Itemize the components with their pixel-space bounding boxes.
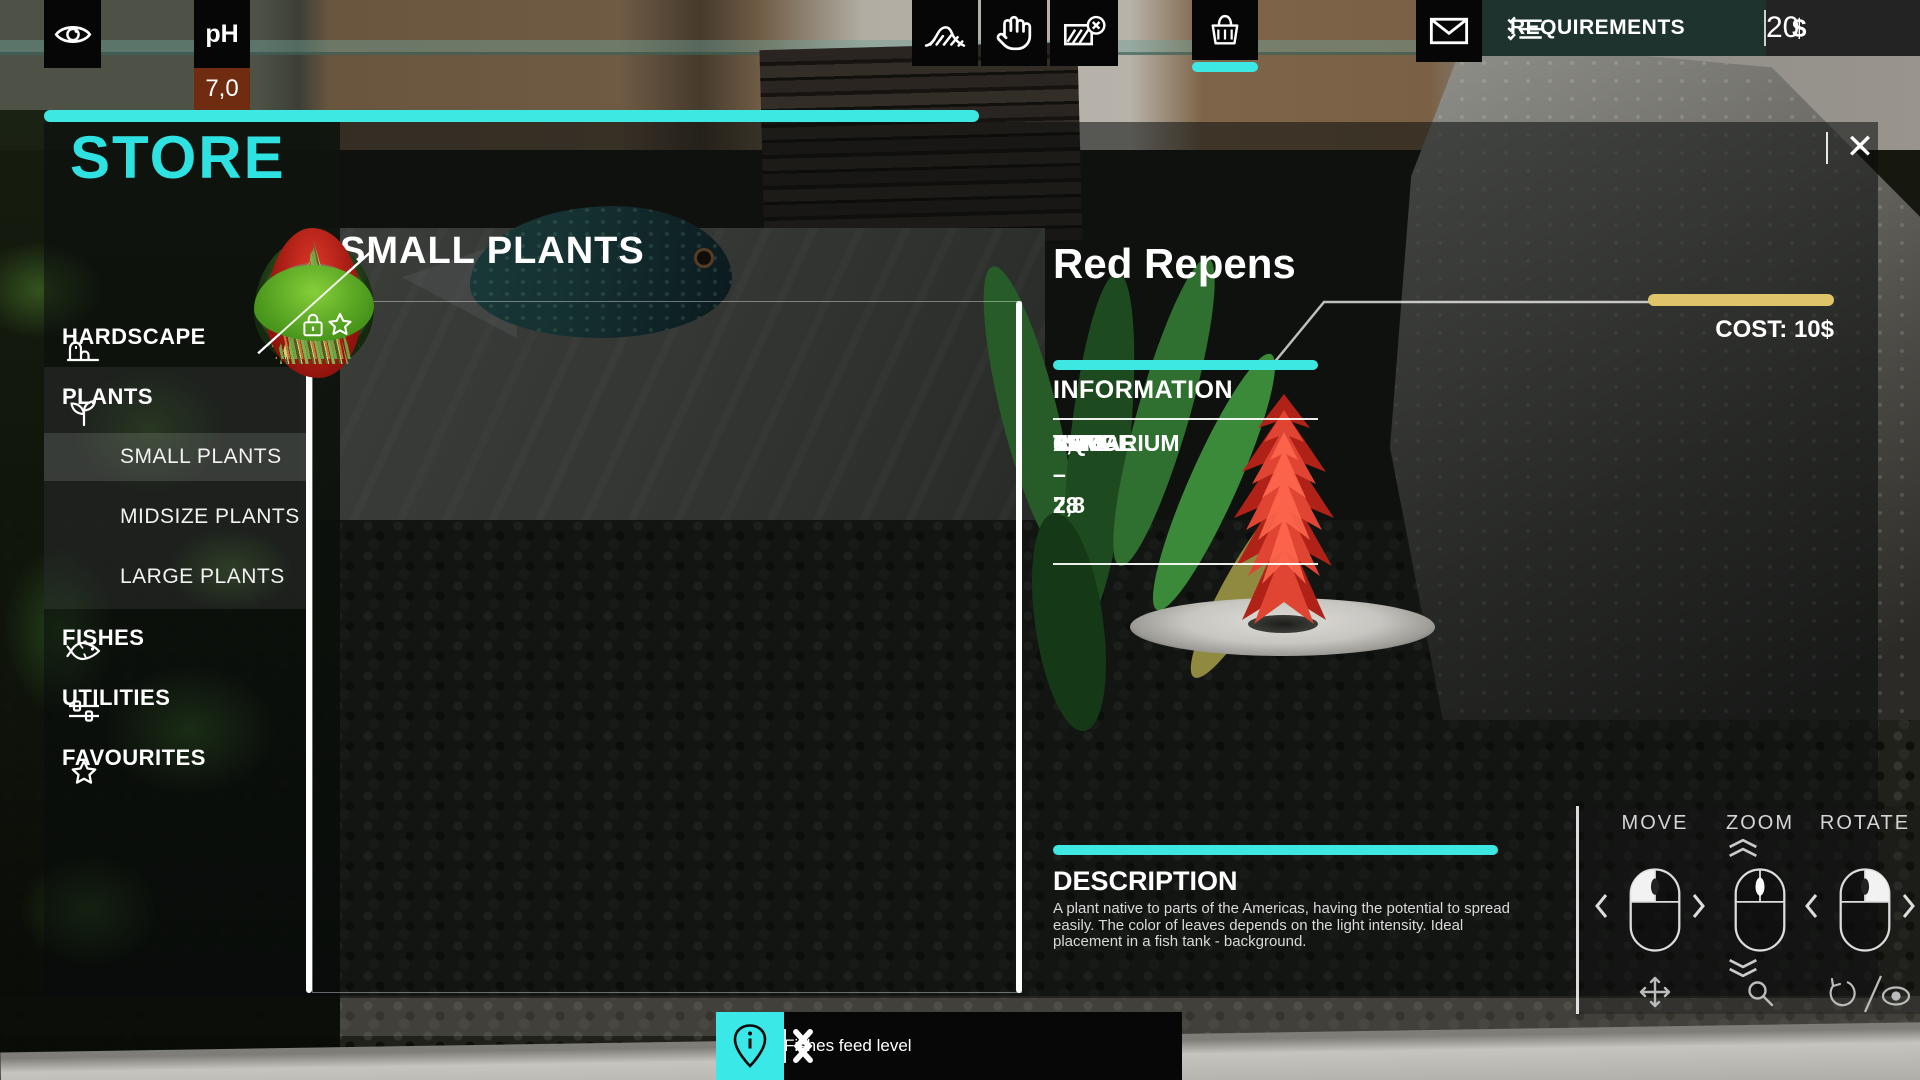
tooltip-bar: Fishes feed level bbox=[784, 1012, 1182, 1080]
store-title: STORE bbox=[70, 122, 286, 194]
section-title: SMALL PLANTS bbox=[340, 230, 645, 273]
magnifier-icon bbox=[1745, 978, 1775, 1008]
visibility-button[interactable] bbox=[44, 0, 101, 68]
sidebar-item-utilities[interactable]: UTILITIES bbox=[44, 678, 312, 718]
mouse-move-icon bbox=[1628, 864, 1682, 956]
sidebar-item-plants[interactable]: PLANTS bbox=[44, 377, 312, 417]
sidebar-item-large-plants[interactable]: LARGE PLANTS bbox=[44, 557, 312, 597]
sidebar-label: MIDSIZE PLANTS bbox=[120, 505, 300, 529]
sand-mound-icon bbox=[924, 17, 966, 49]
sidebar-item-fishes[interactable]: FISHES bbox=[44, 618, 312, 658]
camera-controls-panel: MOVE ZOOM ROTATE bbox=[1576, 806, 1920, 1014]
sidebar-label: UTILITIES bbox=[62, 685, 170, 711]
eraser-tool-button[interactable] bbox=[1050, 0, 1118, 66]
empty-cell bbox=[313, 302, 315, 304]
ph-value: 7,0 bbox=[205, 75, 238, 103]
information-accent-bar bbox=[1053, 360, 1318, 370]
eye-icon bbox=[54, 22, 92, 47]
sidebar-label: FISHES bbox=[62, 625, 144, 651]
cost-label: COST: 10$ bbox=[1598, 316, 1834, 344]
sidebar-label: SMALL PLANTS bbox=[120, 445, 282, 469]
sidebar-item-midsize-plants[interactable]: MIDSIZE PLANTS bbox=[44, 497, 312, 537]
game-screen: STORE ✕ HARDSCAPE PLANTS SMALL PLANTS bbox=[0, 0, 1920, 1080]
info-pin-icon bbox=[730, 1022, 770, 1070]
sidebar-label: FAVOURITES bbox=[62, 745, 206, 771]
double-chevron-down-icon bbox=[1725, 958, 1761, 978]
eraser-x-icon bbox=[1062, 14, 1106, 52]
sidebar-item-small-plants[interactable]: SMALL PLANTS bbox=[44, 437, 312, 477]
mouse-zoom-icon bbox=[1733, 864, 1787, 956]
chevron-left-icon bbox=[1803, 892, 1819, 920]
ph-label: pH bbox=[205, 20, 238, 49]
mail-button[interactable] bbox=[1416, 0, 1482, 62]
zoom-label: ZOOM bbox=[1705, 812, 1815, 835]
sand-tool-button[interactable] bbox=[912, 0, 978, 66]
description-accent-bar bbox=[1053, 845, 1498, 855]
chevron-right-icon bbox=[1901, 892, 1917, 920]
requirements-button[interactable]: REQUIREMENTS bbox=[1482, 0, 1766, 56]
move-label: MOVE bbox=[1600, 812, 1710, 835]
rotate-label: ROTATE bbox=[1810, 812, 1920, 835]
preview-red-plant bbox=[1184, 380, 1384, 670]
plant-grid bbox=[312, 301, 1022, 993]
sidebar-label: PLANTS bbox=[62, 384, 153, 410]
move-arrows-icon bbox=[1637, 974, 1673, 1010]
cost-bar bbox=[1648, 294, 1834, 306]
divider bbox=[1053, 418, 1318, 420]
stat-value: LARGE bbox=[1053, 428, 1134, 459]
close-divider bbox=[1826, 132, 1828, 164]
checklist-icon bbox=[1506, 13, 1544, 43]
chevron-right-icon bbox=[1691, 892, 1707, 920]
close-button[interactable]: ✕ bbox=[1834, 122, 1886, 172]
mouse-rotate-icon bbox=[1838, 864, 1892, 956]
envelope-icon bbox=[1429, 16, 1469, 46]
basket-button[interactable] bbox=[1192, 0, 1258, 60]
hand-tool-button[interactable] bbox=[981, 0, 1047, 66]
rotate-eye-icon bbox=[1825, 974, 1913, 1014]
plant-name: Red Repens bbox=[1053, 240, 1296, 288]
chevron-left-icon bbox=[1593, 892, 1609, 920]
hand-icon bbox=[995, 14, 1033, 52]
next-tip-button[interactable] bbox=[792, 1029, 814, 1063]
sidebar-item-favourites[interactable]: FAVOURITES bbox=[44, 738, 312, 778]
money-display: $ 20 bbox=[1766, 0, 1920, 56]
store-progress-bar bbox=[44, 110, 979, 122]
sidebar-label: HARDSCAPE bbox=[62, 324, 206, 350]
description-title: DESCRIPTION bbox=[1053, 866, 1238, 897]
double-chevron-up-icon bbox=[1725, 838, 1761, 858]
information-title: INFORMATION bbox=[1053, 376, 1233, 405]
basket-active-underline bbox=[1192, 62, 1258, 72]
ph-widget: pH bbox=[194, 0, 250, 68]
money-amount: 20 bbox=[1766, 11, 1799, 45]
basket-icon bbox=[1205, 12, 1245, 48]
info-button[interactable] bbox=[716, 1012, 784, 1080]
description-text: A plant native to parts of the Americas,… bbox=[1053, 901, 1521, 951]
divider bbox=[1053, 563, 1318, 565]
sidebar-label: LARGE PLANTS bbox=[120, 565, 285, 589]
divider bbox=[784, 1029, 786, 1063]
ph-value-badge: 7,0 bbox=[194, 68, 250, 110]
